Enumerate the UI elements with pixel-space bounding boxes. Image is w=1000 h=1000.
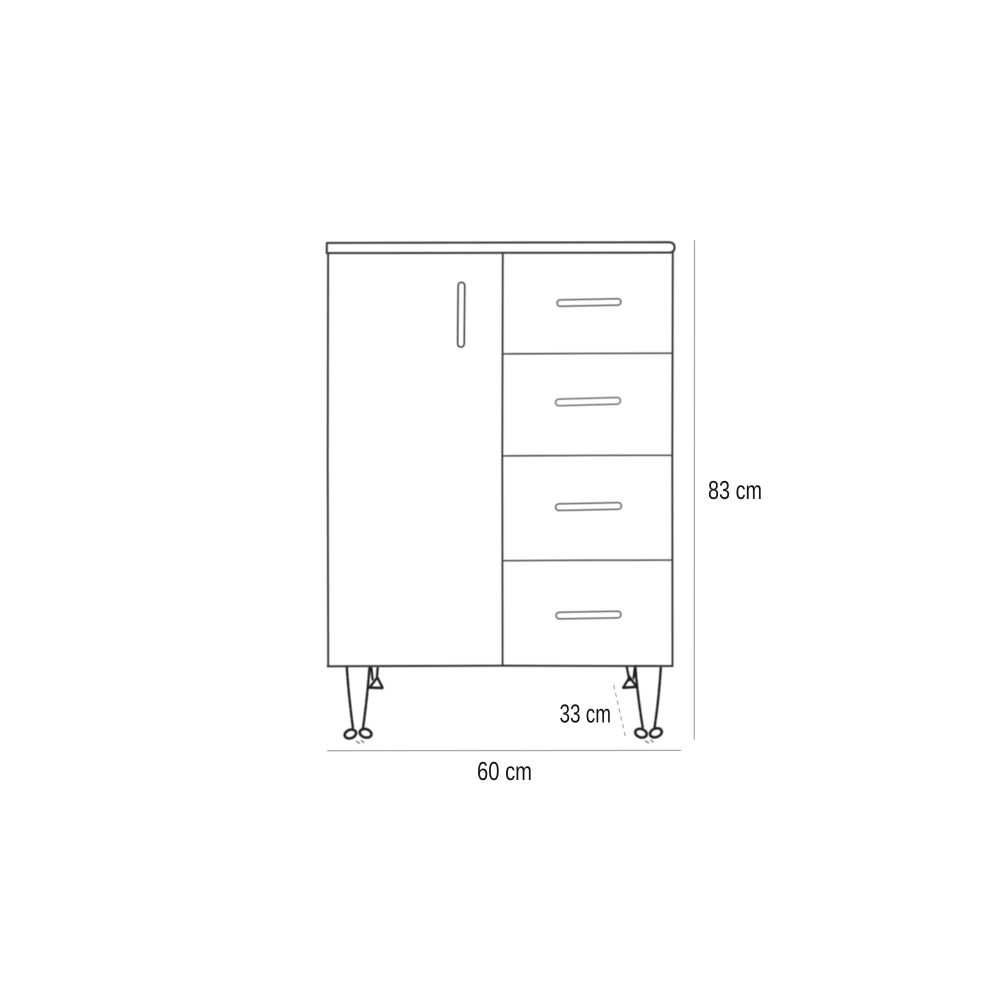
svg-text:60 cm: 60 cm xyxy=(477,758,532,786)
svg-text:33 cm: 33 cm xyxy=(560,700,612,728)
svg-text:83 cm: 83 cm xyxy=(708,477,762,505)
